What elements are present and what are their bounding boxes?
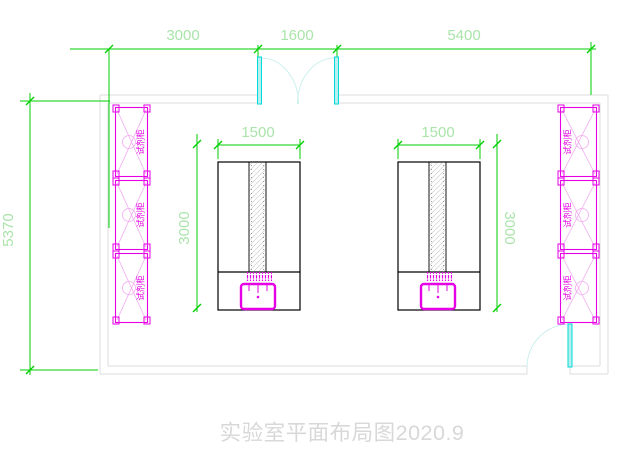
door-leaf <box>568 324 572 367</box>
dimension-label-bench-width: 1500 <box>421 124 454 141</box>
cad-drawing-page: 试剂柜 试剂柜 <box>0 0 619 469</box>
dimension-label-top-middle: 1600 <box>280 27 313 44</box>
drain-mark <box>437 296 440 299</box>
door-leaf <box>335 57 339 104</box>
door-leaf <box>258 57 262 104</box>
dimension-label-bench-depth: 3000 <box>176 211 193 244</box>
lab-bench-left <box>218 162 300 310</box>
reagent-cabinet <box>558 251 599 324</box>
dimension-label-bench-width: 1500 <box>241 124 274 141</box>
floor-plan: 试剂柜 试剂柜 <box>0 0 619 469</box>
side-exit-door <box>527 324 572 367</box>
door-swing-arc <box>527 324 570 367</box>
dimension-label-bench-depth: 3000 <box>501 211 518 244</box>
drain-grate <box>426 272 452 281</box>
drawing-title: 实验室平面布局图2020.9 <box>220 421 465 445</box>
reagent-cabinet <box>558 178 599 251</box>
reagent-cabinet <box>113 178 150 251</box>
door-swing-arc <box>262 58 299 104</box>
double-entry-door <box>258 57 339 104</box>
reagent-cabinet <box>113 251 150 324</box>
reagent-cabinets-right <box>558 105 599 324</box>
left-dimension: 5370 <box>0 93 110 375</box>
dimension-label-overall-height: 5370 <box>0 213 17 246</box>
reagent-cabinet <box>558 105 599 178</box>
lab-bench-right <box>398 162 480 310</box>
reagent-cabinet <box>113 105 150 178</box>
reagent-cabinets-left <box>113 105 150 324</box>
drain-mark <box>257 296 260 299</box>
top-dimension-chain: 3000 1600 5400 <box>70 27 596 228</box>
dimension-label-top-left: 3000 <box>166 27 199 44</box>
dimension-label-top-right: 5400 <box>447 27 480 44</box>
drain-grate <box>246 272 272 281</box>
door-swing-arc <box>298 58 335 104</box>
